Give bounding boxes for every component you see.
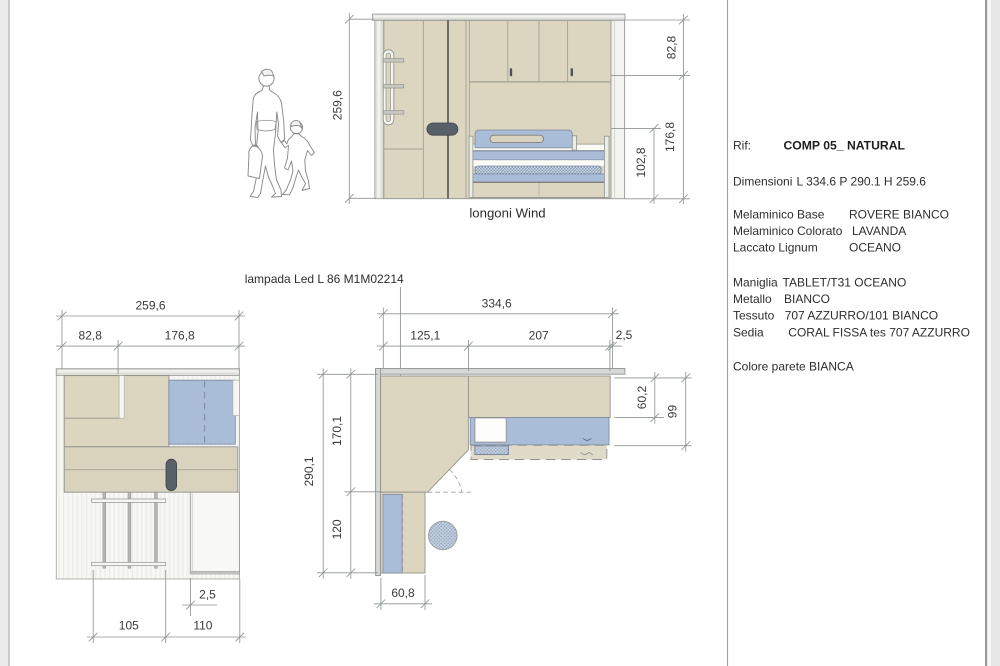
- svg-text:Melaminico Base: Melaminico Base: [733, 208, 825, 222]
- svg-text:OCEANO: OCEANO: [849, 241, 901, 255]
- svg-text:82,8: 82,8: [664, 35, 678, 59]
- svg-text:170,1: 170,1: [330, 416, 344, 446]
- svg-text:102,8: 102,8: [634, 147, 648, 177]
- svg-text:259,6: 259,6: [331, 90, 345, 120]
- svg-text:125,1: 125,1: [410, 329, 440, 343]
- svg-text:60,8: 60,8: [391, 586, 415, 600]
- svg-text:Rif:: Rif:: [733, 139, 751, 153]
- svg-text:259,6: 259,6: [135, 299, 165, 313]
- svg-text:290,1: 290,1: [302, 456, 316, 486]
- svg-text:2,5: 2,5: [199, 588, 216, 602]
- svg-text:105: 105: [119, 619, 139, 633]
- svg-text:LAVANDA: LAVANDA: [852, 224, 906, 238]
- svg-text:Tessuto: Tessuto: [733, 309, 775, 323]
- svg-text:COMP 05_ NATURAL: COMP 05_ NATURAL: [784, 139, 906, 153]
- svg-text:lampada Led L 86 M1M02214: lampada Led L 86 M1M02214: [245, 272, 404, 286]
- svg-text:Metallo: Metallo: [733, 292, 772, 306]
- svg-text:CORAL FISSA tes 707 AZZURRO: CORAL FISSA tes 707 AZZURRO: [788, 326, 970, 340]
- svg-text:60,2: 60,2: [635, 385, 649, 409]
- svg-text:L 334.6 P 290.1 H 259.6: L 334.6 P 290.1 H 259.6: [797, 175, 927, 189]
- svg-text:110: 110: [193, 619, 212, 633]
- svg-text:176,8: 176,8: [165, 329, 195, 343]
- svg-text:334,6: 334,6: [482, 296, 512, 310]
- svg-text:BIANCO: BIANCO: [784, 292, 830, 306]
- svg-text:120: 120: [330, 519, 344, 539]
- svg-text:707 AZZURRO/101 BIANCO: 707 AZZURRO/101 BIANCO: [785, 309, 938, 323]
- svg-text:Laccato Lignum: Laccato Lignum: [733, 241, 818, 255]
- svg-text:TABLET/T31 OCEANO: TABLET/T31 OCEANO: [783, 276, 907, 290]
- svg-text:99: 99: [666, 405, 680, 419]
- svg-text:longoni Wind: longoni Wind: [469, 206, 545, 221]
- svg-text:ROVERE BIANCO: ROVERE BIANCO: [849, 208, 949, 222]
- svg-text:176,8: 176,8: [663, 122, 677, 152]
- svg-text:Dimensioni: Dimensioni: [733, 175, 792, 189]
- svg-text:2,5: 2,5: [616, 328, 633, 342]
- svg-text:Melaminico Colorato: Melaminico Colorato: [733, 224, 843, 238]
- svg-text:Sedia: Sedia: [733, 326, 764, 340]
- svg-text:82,8: 82,8: [79, 329, 103, 343]
- svg-text:Maniglia: Maniglia: [733, 276, 778, 290]
- svg-text:207: 207: [529, 329, 549, 343]
- svg-text:Colore parete BIANCA: Colore parete BIANCA: [733, 360, 854, 374]
